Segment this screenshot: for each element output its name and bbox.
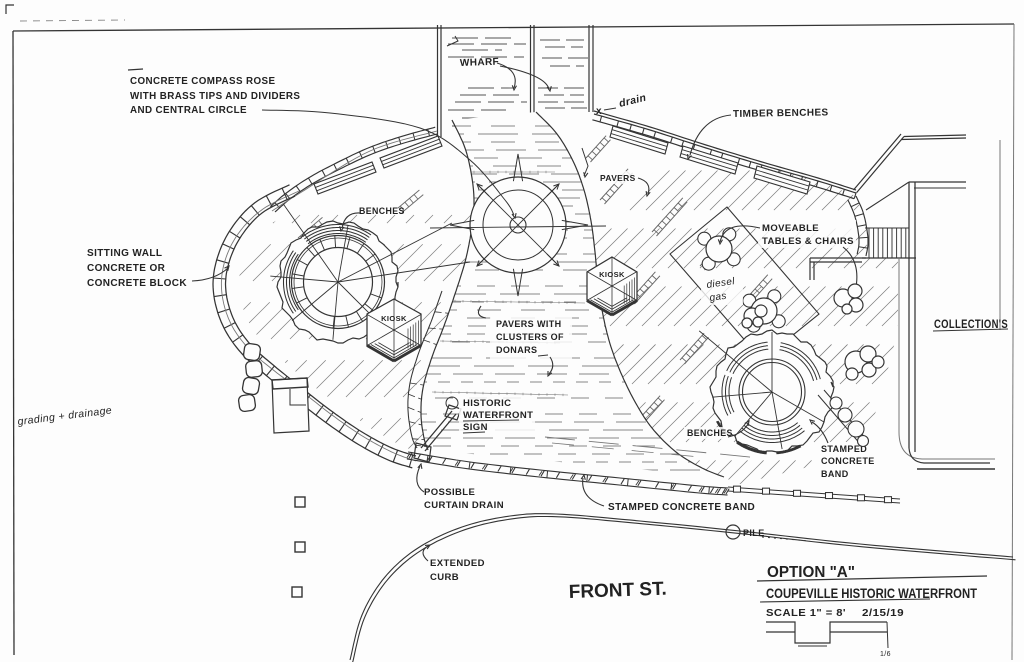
svg-text:CURB: CURB (430, 572, 459, 583)
svg-text:CONCRETE BLOCK: CONCRETE BLOCK (87, 278, 187, 289)
svg-text:1/6: 1/6 (880, 651, 891, 658)
svg-text:CLUSTERS OF: CLUSTERS OF (496, 332, 564, 342)
svg-text:SIGN: SIGN (463, 422, 488, 433)
svg-text:CONCRETE COMPASS ROSE: CONCRETE COMPASS ROSE (130, 76, 275, 87)
svg-text:TIMBER BENCHES: TIMBER BENCHES (733, 107, 829, 120)
svg-text:STAMPED CONCRETE BAND: STAMPED CONCRETE BAND (608, 502, 755, 513)
svg-text:FRONT ST.: FRONT ST. (568, 579, 667, 603)
svg-text:TABLES & CHAIRS: TABLES & CHAIRS (762, 236, 854, 247)
svg-text:PAVERS: PAVERS (600, 173, 636, 183)
svg-text:CURTAIN DRAIN: CURTAIN DRAIN (424, 500, 504, 511)
svg-text:BAND: BAND (821, 469, 849, 479)
svg-text:MOVEABLE: MOVEABLE (762, 223, 819, 234)
svg-text:POSSIBLE: POSSIBLE (424, 487, 475, 498)
svg-text:2/15/19: 2/15/19 (862, 607, 904, 619)
svg-text:BENCHES: BENCHES (359, 206, 405, 216)
svg-text:PILE: PILE (743, 528, 765, 538)
svg-text:HISTORIC: HISTORIC (463, 398, 511, 409)
svg-text:PAVERS WITH: PAVERS WITH (496, 319, 562, 329)
svg-text:SITTING WALL: SITTING WALL (87, 248, 162, 259)
svg-text:EXTENDED: EXTENDED (430, 558, 485, 569)
svg-text:CONCRETE OR: CONCRETE OR (87, 263, 166, 274)
svg-text:AND CENTRAL CIRCLE: AND CENTRAL CIRCLE (130, 105, 247, 116)
svg-text:DONARS: DONARS (496, 345, 537, 355)
svg-text:WITH BRASS TIPS AND DIVIDERS: WITH BRASS TIPS AND DIVIDERS (130, 91, 300, 102)
svg-text:OPTION "A": OPTION "A" (767, 564, 855, 581)
svg-text:KIOSK: KIOSK (599, 270, 625, 279)
svg-text:COUPEVILLE HISTORIC WATERFRONT: COUPEVILLE HISTORIC WATERFRONT (766, 586, 978, 601)
svg-text:WATERFRONT: WATERFRONT (463, 410, 533, 421)
svg-text:BENCHES: BENCHES (687, 428, 733, 438)
svg-text:KIOSK: KIOSK (381, 314, 407, 323)
svg-text:SCALE 1" = 8': SCALE 1" = 8' (766, 607, 846, 619)
svg-text:CONCRETE: CONCRETE (821, 456, 875, 466)
svg-text:WHARF: WHARF (460, 57, 500, 69)
